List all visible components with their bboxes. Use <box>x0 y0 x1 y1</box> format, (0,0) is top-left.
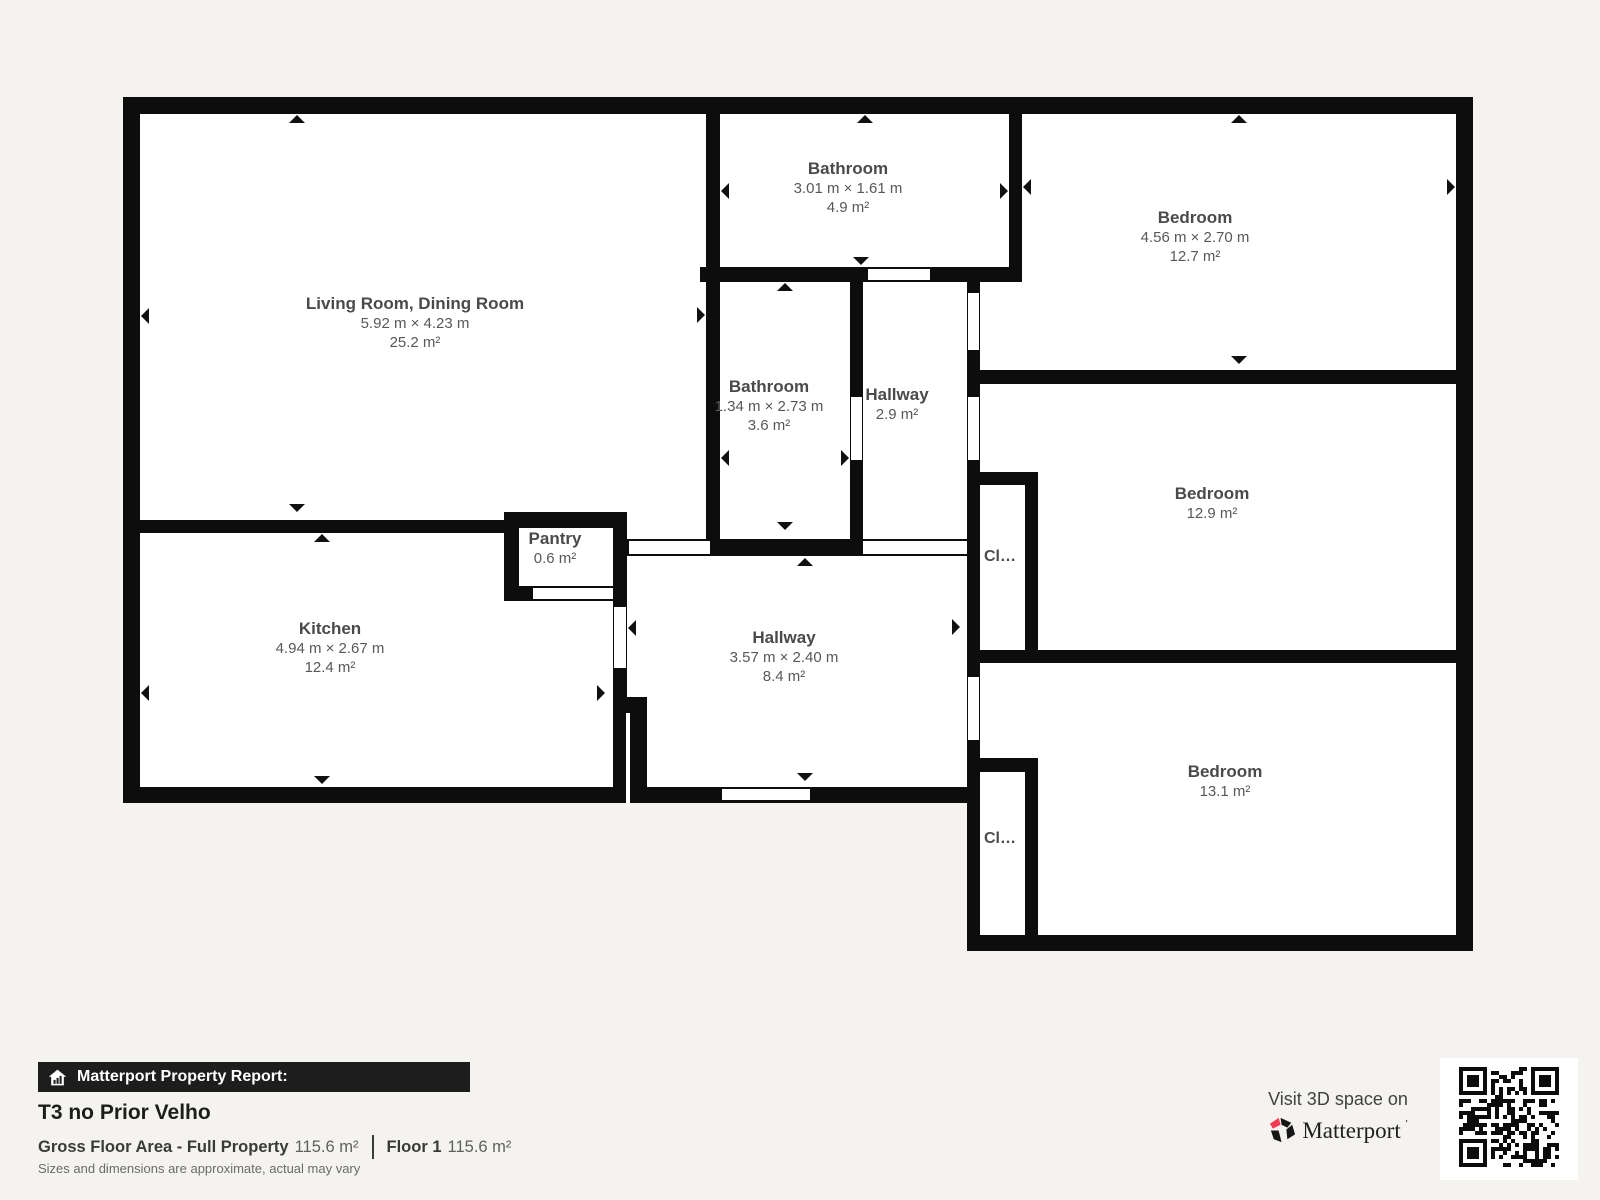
room-name: Pantry <box>529 528 582 549</box>
wall <box>967 935 1473 951</box>
room-area: 25.2 m² <box>306 333 524 352</box>
door-opening <box>614 607 626 668</box>
door-opening <box>629 541 710 554</box>
dimension-arrow-up-icon <box>314 534 330 542</box>
matterport-logo: Matterport ' <box>1252 1116 1424 1145</box>
gross-floor-area-value: 115.6 m² <box>295 1138 359 1157</box>
wall <box>123 97 1473 114</box>
qr-card <box>1440 1058 1578 1180</box>
dimension-arrow-down-icon <box>797 773 813 781</box>
room-area: 4.9 m² <box>794 198 903 217</box>
wall <box>1025 472 1038 663</box>
dimension-arrow-down-icon <box>314 776 330 784</box>
qr-code <box>1459 1067 1559 1172</box>
dimension-arrow-right-icon <box>597 685 605 701</box>
report-header-label: Matterport Property Report: <box>77 1068 288 1086</box>
dimension-arrow-right-icon <box>1000 183 1008 199</box>
disclaimer-text: Sizes and dimensions are approximate, ac… <box>38 1161 360 1176</box>
room-label-hallway-small: Hallway 2.9 m² <box>865 384 928 424</box>
wall <box>1456 97 1473 951</box>
room-label-bedroom-middle: Bedroom 12.9 m² <box>1175 483 1250 523</box>
room-dimensions: 1.34 m × 2.73 m <box>715 397 824 416</box>
room-label-living-dining: Living Room, Dining Room 5.92 m × 4.23 m… <box>306 293 524 352</box>
wall <box>1025 758 1038 951</box>
room-label-pantry: Pantry 0.6 m² <box>529 528 582 568</box>
door-opening <box>722 789 810 800</box>
wall <box>630 713 647 803</box>
room-area: 8.4 m² <box>730 667 839 686</box>
dimension-arrow-up-icon <box>289 115 305 123</box>
divider <box>372 1135 374 1159</box>
room-dimensions: 3.57 m × 2.40 m <box>730 648 839 667</box>
wall <box>967 556 980 935</box>
room-dimensions: 3.01 m × 1.61 m <box>794 179 903 198</box>
room-label-bathroom-middle: Bathroom 1.34 m × 2.73 m 3.6 m² <box>715 376 824 435</box>
room-label-closet-2: Cl… <box>984 830 1016 848</box>
matterport-wordmark: Matterport <box>1302 1118 1400 1144</box>
door-opening <box>851 397 862 460</box>
room-name: Hallway <box>865 384 928 405</box>
room-dimensions: 5.92 m × 4.23 m <box>306 314 524 333</box>
room-area: 12.9 m² <box>1175 504 1250 523</box>
report-header-bar: Matterport Property Report: <box>38 1062 470 1092</box>
room-label-bedroom-bottom: Bedroom 13.1 m² <box>1188 761 1263 801</box>
dimension-arrow-left-icon <box>721 183 729 199</box>
dimension-arrow-left-icon <box>141 685 149 701</box>
wall <box>967 650 1473 663</box>
dimension-arrow-down-icon <box>853 257 869 265</box>
dimension-arrow-up-icon <box>777 283 793 291</box>
floor-label: Floor 1 <box>387 1138 442 1157</box>
wall <box>700 267 1022 282</box>
room-label-hallway-main: Hallway 3.57 m × 2.40 m 8.4 m² <box>730 627 839 686</box>
dimension-arrow-right-icon <box>697 307 705 323</box>
dimension-arrow-left-icon <box>1023 179 1031 195</box>
room-area: 13.1 m² <box>1188 782 1263 801</box>
floorplan-area-right <box>967 803 1473 951</box>
room-name: Bedroom <box>1188 761 1263 782</box>
dimension-arrow-down-icon <box>289 504 305 512</box>
gross-floor-area-label: Gross Floor Area - Full Property <box>38 1138 289 1157</box>
dimension-arrow-up-icon <box>857 115 873 123</box>
room-area: 2.9 m² <box>865 405 928 424</box>
wall <box>123 520 506 533</box>
door-opening <box>863 541 967 554</box>
room-name: Living Room, Dining Room <box>306 293 524 314</box>
room-name: Kitchen <box>276 618 385 639</box>
visit-3d-cta: Visit 3D space on Matterport ' <box>1252 1089 1424 1145</box>
visit-3d-text: Visit 3D space on <box>1252 1089 1424 1110</box>
page: Living Room, Dining Room 5.92 m × 4.23 m… <box>0 0 1600 1200</box>
room-dimensions: 4.94 m × 2.67 m <box>276 639 385 658</box>
door-opening <box>868 269 930 280</box>
room-area: 12.4 m² <box>276 658 385 677</box>
wall <box>1009 114 1022 267</box>
dimension-arrow-left-icon <box>721 450 729 466</box>
wall <box>980 370 1473 384</box>
room-name: Hallway <box>730 627 839 648</box>
room-name: Bathroom <box>794 158 903 179</box>
wall <box>123 97 140 803</box>
room-area: 0.6 m² <box>529 549 582 568</box>
room-name: Bathroom <box>715 376 824 397</box>
door-opening <box>968 677 979 740</box>
wall-seam <box>626 713 630 803</box>
dimension-arrow-down-icon <box>1231 356 1247 364</box>
dimension-arrow-left-icon <box>141 308 149 324</box>
wall <box>706 114 720 539</box>
home-chart-icon <box>48 1068 67 1087</box>
dimension-arrow-up-icon <box>797 558 813 566</box>
dimension-arrow-right-icon <box>1447 179 1455 195</box>
dimension-arrow-up-icon <box>1231 115 1247 123</box>
room-name: Bedroom <box>1141 207 1250 228</box>
door-opening <box>533 588 613 599</box>
dimension-arrow-right-icon <box>952 619 960 635</box>
dimension-arrow-left-icon <box>628 620 636 636</box>
dimension-arrow-down-icon <box>777 522 793 530</box>
room-label-kitchen: Kitchen 4.94 m × 2.67 m 12.4 m² <box>276 618 385 677</box>
wall <box>123 787 980 803</box>
room-name: Bedroom <box>1175 483 1250 504</box>
wall <box>626 697 647 713</box>
room-label-bathroom-top: Bathroom 3.01 m × 1.61 m 4.9 m² <box>794 158 903 217</box>
matterport-mark-icon <box>1268 1116 1297 1145</box>
floor-area-value: 115.6 m² <box>448 1138 512 1157</box>
wall <box>504 512 627 528</box>
room-area: 3.6 m² <box>715 416 824 435</box>
trademark-tick: ' <box>1406 1119 1408 1130</box>
door-opening <box>968 293 979 350</box>
room-label-bedroom-top: Bedroom 4.56 m × 2.70 m 12.7 m² <box>1141 207 1250 266</box>
room-dimensions: 4.56 m × 2.70 m <box>1141 228 1250 247</box>
room-label-closet-1: Cl… <box>984 548 1016 566</box>
property-title: T3 no Prior Velho <box>38 1101 211 1125</box>
door-opening <box>968 397 979 460</box>
area-summary: Gross Floor Area - Full Property 115.6 m… <box>38 1135 511 1159</box>
room-area: 12.7 m² <box>1141 247 1250 266</box>
dimension-arrow-right-icon <box>841 450 849 466</box>
